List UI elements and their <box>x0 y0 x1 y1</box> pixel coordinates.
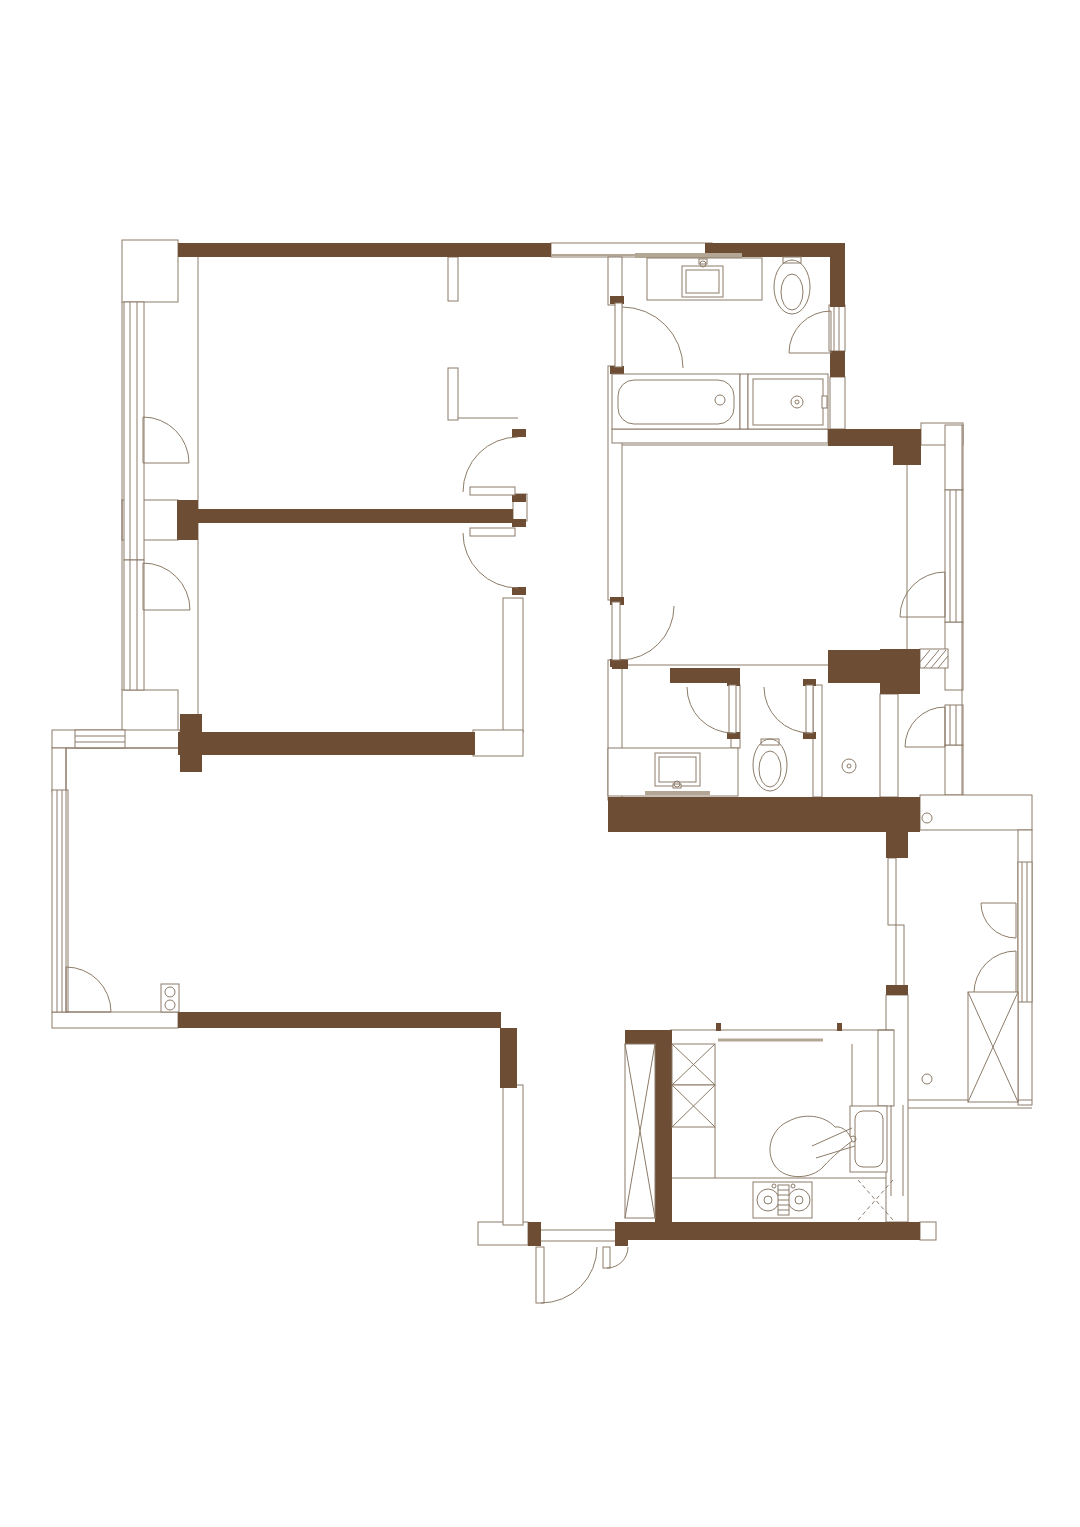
bath2-right-band <box>880 694 898 797</box>
door-arc-bed2 <box>463 533 518 588</box>
door-arc-bath2b <box>764 687 810 733</box>
hinge-corridor <box>612 660 628 669</box>
bath1-right-wall-lower <box>830 377 845 429</box>
bath2-partition-2 <box>813 685 822 797</box>
hinge-bed2-a <box>512 519 526 527</box>
sliding-panel-1 <box>888 858 896 925</box>
wall-bedroom-divider <box>178 509 513 523</box>
wall-kitchen-top-left <box>625 1030 672 1044</box>
balcony-top-band <box>920 795 1032 830</box>
wall-cap-bottom-right <box>920 1222 936 1240</box>
toilet-2-bowl <box>753 739 787 791</box>
wall-bay-pilaster <box>180 714 202 772</box>
door-arc-master <box>620 606 674 660</box>
door-leaf-entry-main <box>536 1247 544 1303</box>
shower-2-drain <box>842 759 856 773</box>
wall-master-bottomright-a <box>828 650 880 683</box>
sash-window-left-1 <box>143 417 189 463</box>
sash-window-master-2 <box>905 707 945 747</box>
wall-master-topright-b <box>893 429 921 465</box>
pillar-east-3 <box>945 745 963 795</box>
door-leaf-bed1 <box>470 487 515 495</box>
sash-window-bath1 <box>789 311 831 353</box>
wall-top-a <box>178 243 551 257</box>
closet-stub-lower <box>448 368 458 420</box>
bath1-bottom-band <box>612 429 828 443</box>
sliding-panel-2 <box>896 925 904 990</box>
shower-1-handle <box>822 396 827 408</box>
towel-bar <box>645 791 710 795</box>
floor-plan-page <box>0 0 1080 1527</box>
sash-window-balcony-1 <box>974 951 1016 993</box>
wall-bath1-right-mid <box>830 351 845 377</box>
wall-kitchen-left <box>655 1044 672 1222</box>
wall-living-divider <box>178 732 475 755</box>
entry-left-wall <box>503 1085 523 1225</box>
window-bay-top <box>75 730 125 748</box>
door-leaf-master <box>612 602 620 660</box>
sink-2-basin <box>659 757 696 782</box>
wall-left-segment <box>52 748 66 792</box>
door-leaf-bath2a <box>729 685 736 733</box>
toilet-2-tank <box>761 739 779 745</box>
floor-plan <box>0 0 1080 1527</box>
column-low-left <box>122 690 178 732</box>
bathtub-inner <box>618 380 734 424</box>
kitchen-sink-basin <box>855 1111 883 1167</box>
hinge-entry-b <box>615 1222 628 1246</box>
wall-slider-cap <box>886 985 908 995</box>
window-balcony <box>1018 862 1032 1002</box>
door-arc-bath2a <box>687 687 733 733</box>
hinge-entry-a <box>528 1222 541 1246</box>
kitchen-right-wall-upper <box>878 1030 894 1106</box>
tub-shower-divider <box>740 374 748 429</box>
toilet-2-seat <box>759 751 781 787</box>
window-master-1 <box>945 490 963 622</box>
wall-bath1-right-upper <box>830 243 845 307</box>
bath1-shelf <box>635 253 742 258</box>
door-arc-entry-main <box>541 1247 597 1303</box>
sash-window-left-2 <box>143 563 190 610</box>
door-leaf-bath1 <box>615 303 622 367</box>
wall-living-bottom <box>178 1012 501 1028</box>
toilet-1-bowl <box>774 260 810 314</box>
door-arc-bath1 <box>622 307 683 368</box>
sash-window-living <box>66 967 111 1012</box>
window-left-1 <box>124 302 144 560</box>
window-left-2 <box>124 560 144 690</box>
wall-master-bottomright-b <box>880 649 920 694</box>
divider-end-block <box>473 730 523 756</box>
bed2-right-wall <box>503 598 523 732</box>
column-top-left <box>122 240 178 302</box>
door-arc-bed1 <box>463 437 518 492</box>
toilet-1-seat <box>781 274 803 310</box>
shower-1-inner <box>753 379 823 425</box>
wall-step-down <box>500 1028 517 1088</box>
wall-divider-left-block <box>177 500 198 540</box>
door-leaf-entry-side <box>603 1247 610 1268</box>
living-floor-outlet <box>161 984 179 1012</box>
door-leaf-bath2b <box>806 685 813 733</box>
sash-window-balcony-2 <box>981 903 1016 938</box>
wall-balcony-divider-top <box>886 810 908 858</box>
person-body <box>770 1116 852 1176</box>
sink-1-basin <box>686 270 719 293</box>
tick-kitchen-a <box>716 1023 721 1031</box>
door-leaf-bed2 <box>470 528 515 536</box>
window-master-2 <box>945 705 963 745</box>
pillar-east-1 <box>945 425 963 490</box>
balcony-drain-bottom <box>922 1074 932 1084</box>
wall-bath2-bottom <box>608 797 920 832</box>
shower-2-drain-dot <box>847 764 851 768</box>
tick-kitchen-b <box>837 1023 842 1031</box>
wall-bottom-left-band <box>52 1012 178 1028</box>
wall-bottom-main <box>625 1222 920 1240</box>
kitchen-right-wall <box>886 995 908 1222</box>
closet-stub-upper <box>448 257 458 301</box>
hinge-bed1-a <box>512 429 526 437</box>
